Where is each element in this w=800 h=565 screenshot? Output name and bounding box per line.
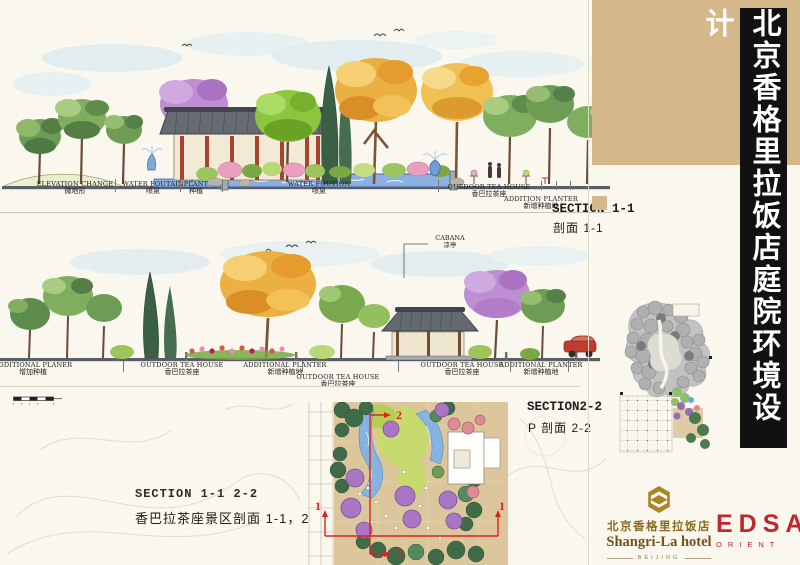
key-plan-grid (620, 396, 672, 452)
s2-divider (568, 361, 569, 372)
pencil-sketch-decoration (0, 388, 614, 565)
s1-divider (115, 179, 116, 192)
cabana-callout: CABANA 凉亭 (428, 235, 472, 249)
cabana-structure (382, 307, 478, 360)
key-plan (617, 300, 719, 458)
section-2-drawing (0, 238, 600, 373)
rule-right (685, 558, 711, 559)
scale-bar (13, 393, 63, 407)
cypresses (143, 272, 176, 358)
section-1-drawing (2, 24, 610, 192)
s1-divider (570, 181, 571, 190)
site-plan: 2 2 1 1 (308, 402, 508, 565)
section-2-title-cn: P 剖面 2-2 (528, 419, 592, 436)
s2-label-outdoor-tea-house-1: OUTDOOR TEA HOUSE 香巴拉茶座 (137, 362, 227, 378)
golden-tree (220, 251, 316, 358)
key-plan-building (673, 304, 699, 316)
project-title-vertical: 北京香格里拉饭店庭院环境设计 (740, 8, 787, 448)
flower-bed (185, 345, 295, 360)
accent-square (592, 196, 607, 210)
s1-label-water-fountain-2: WATER FOUTION 喷泉 (274, 181, 364, 197)
s2-divider (123, 361, 124, 372)
s1-divider (556, 181, 557, 190)
presentation-board: ELEVATION CHANGE 微地形 WATER FOUTAIN 喷泉 PL… (0, 0, 800, 565)
s2-divider (398, 361, 399, 372)
shangrila-name-cn: 北京香格里拉饭店 (598, 518, 720, 534)
edsa-name: EDSA (716, 512, 800, 537)
right-grove (483, 85, 610, 184)
marker-2-bottom: 2 (396, 547, 402, 561)
section-1-title-cn: 剖面 1-1 (553, 219, 604, 236)
shangrila-name-en: Shangri-La hotel (598, 534, 720, 551)
shangrila-emblem-icon (648, 486, 670, 513)
edsa-logo: EDSA ORIENT (716, 512, 800, 549)
sheet-caption-cn: 香巴拉茶座景区剖面 1-1，2-2 (135, 508, 323, 527)
s1-divider (541, 181, 542, 190)
section-2-title: SECTION2-2 (527, 400, 602, 414)
key-plan-highlight-area (671, 387, 710, 449)
s1-label-plant: PLANT 种植 (151, 181, 241, 197)
marker-2-top: 2 (396, 408, 402, 422)
content-sidebar-divider (588, 0, 589, 565)
right-grove (520, 289, 566, 358)
shangrila-logo: 北京香格里拉饭店 Shangri-La hotel BEIJING (598, 486, 720, 561)
s2-label-additional-planer: ADDITIONAL PLANER 增加种植 (0, 362, 78, 378)
marker-1-right: 1 (499, 499, 505, 513)
small-fountain (142, 146, 162, 170)
rule-under-section-2 (0, 386, 580, 387)
s2-divider (302, 361, 303, 372)
left-grove (8, 276, 122, 358)
rule-under-section-1 (0, 212, 612, 213)
marker-1-left: 1 (315, 499, 321, 513)
s2-label-outdoor-tea-house-3: OUTDOOR TEA HOUSE 香巴拉茶座 (417, 362, 507, 378)
shangrila-city: BEIJING (638, 555, 680, 561)
s2-label-outdoor-tea-house-2: OUTDOOR TEA HOUSE 香巴拉茶座 (293, 374, 383, 390)
car (564, 336, 596, 358)
shangrila-city-row: BEIJING (598, 555, 720, 561)
sheet-caption-en: SECTION 1-1 2-2 (135, 487, 258, 501)
left-grove (16, 99, 143, 184)
figures (488, 162, 501, 178)
s1-divider (222, 179, 223, 192)
edsa-subtitle: ORIENT (716, 540, 800, 549)
s2-divider (510, 361, 511, 372)
s1-divider (180, 179, 181, 192)
s1-label-elevation-change: ELEVATION CHANGE 微地形 (30, 181, 120, 197)
blossom-tree (464, 270, 530, 358)
rule-left (607, 558, 633, 559)
s1-divider (438, 180, 439, 192)
sky-washes (12, 31, 584, 96)
